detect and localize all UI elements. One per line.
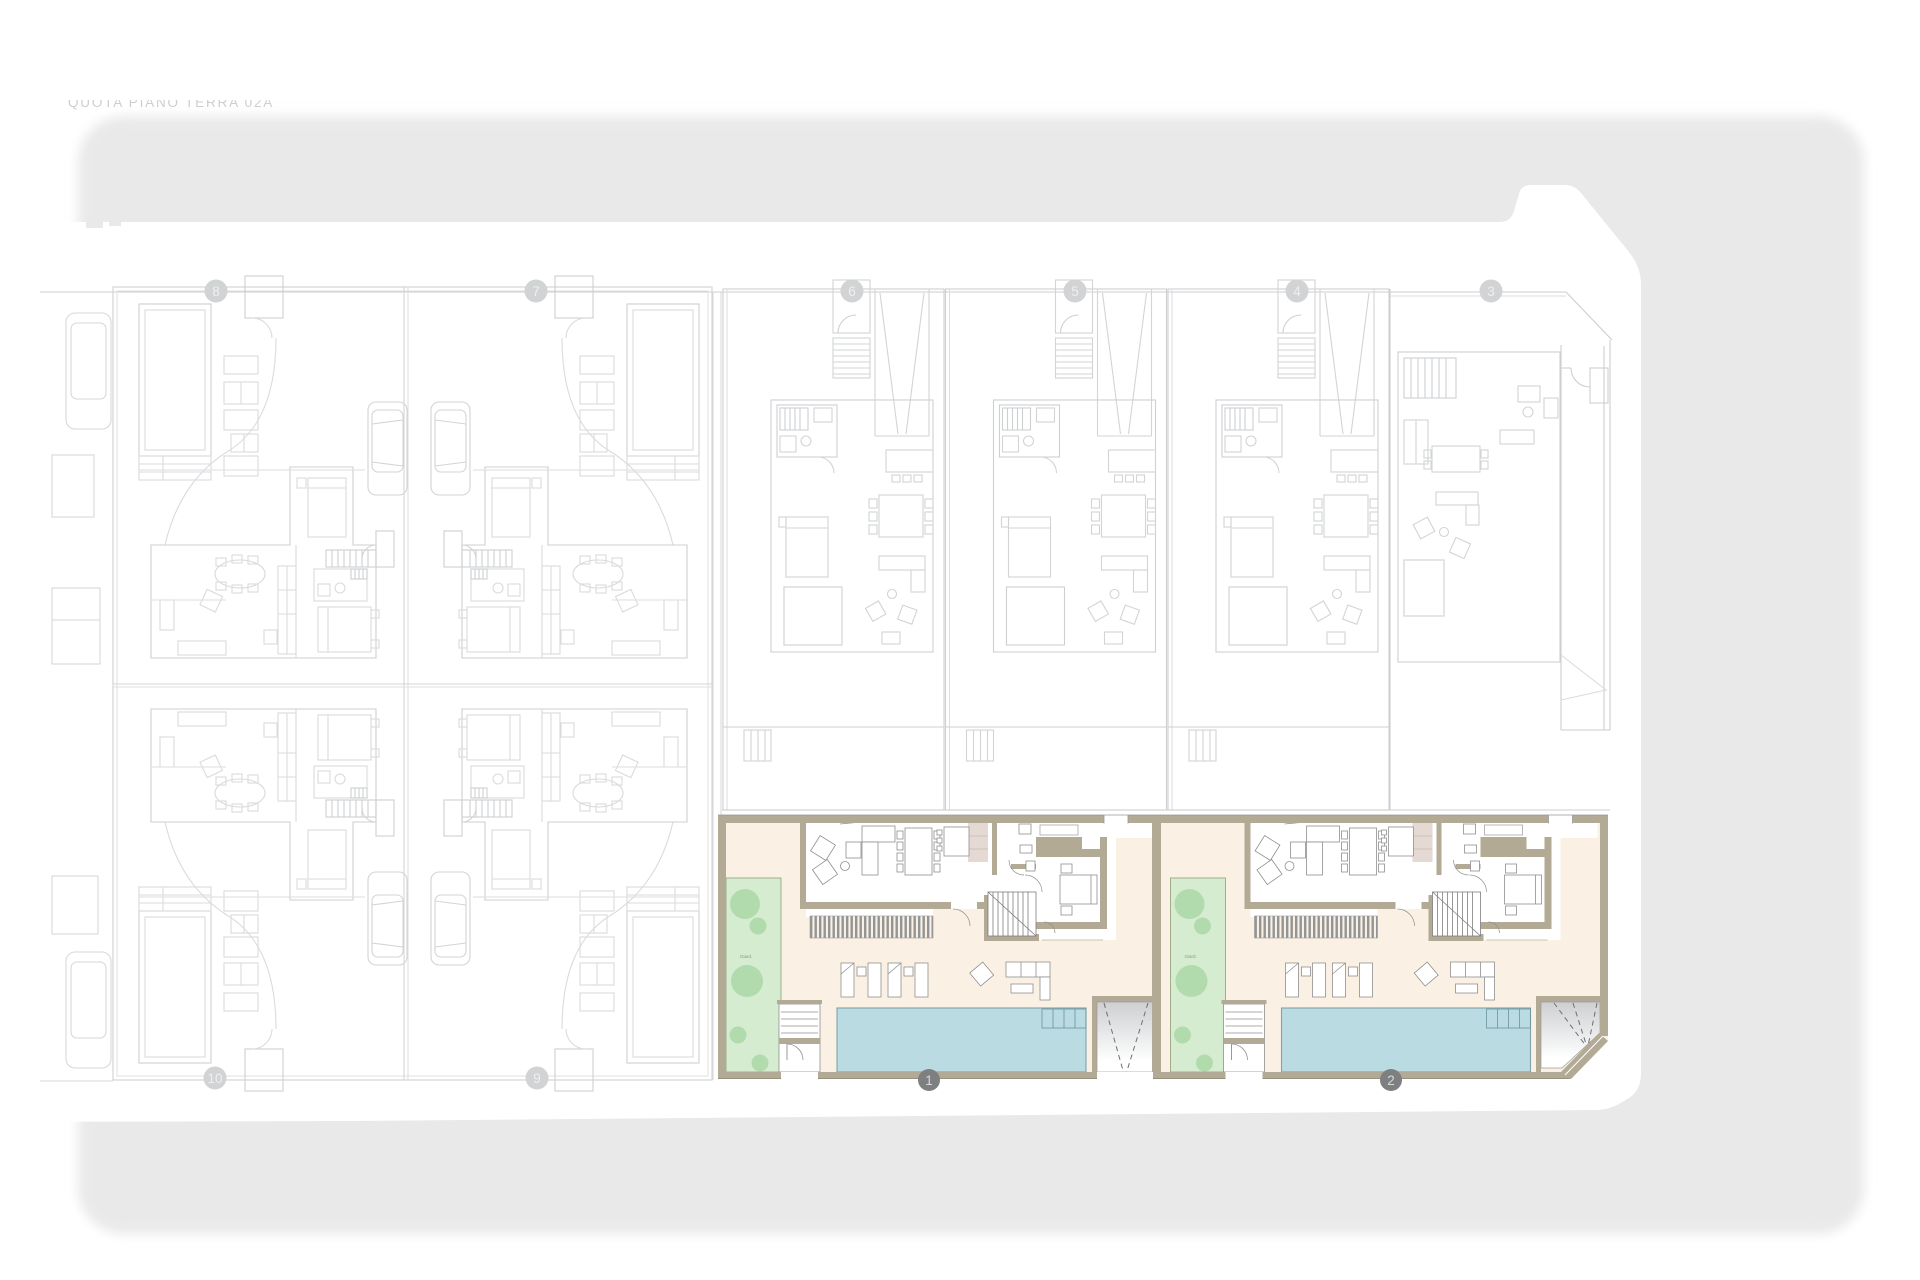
svg-text:6: 6 xyxy=(848,284,856,299)
svg-text:7: 7 xyxy=(532,284,540,299)
svg-text:4: 4 xyxy=(1293,284,1301,299)
svg-text:9: 9 xyxy=(533,1071,541,1086)
svg-text:3: 3 xyxy=(1487,284,1495,299)
svg-text:8: 8 xyxy=(212,284,220,299)
svg-text:10: 10 xyxy=(207,1071,222,1086)
svg-text:5: 5 xyxy=(1071,284,1079,299)
svg-text:2: 2 xyxy=(1387,1073,1395,1088)
svg-text:1: 1 xyxy=(925,1073,933,1088)
